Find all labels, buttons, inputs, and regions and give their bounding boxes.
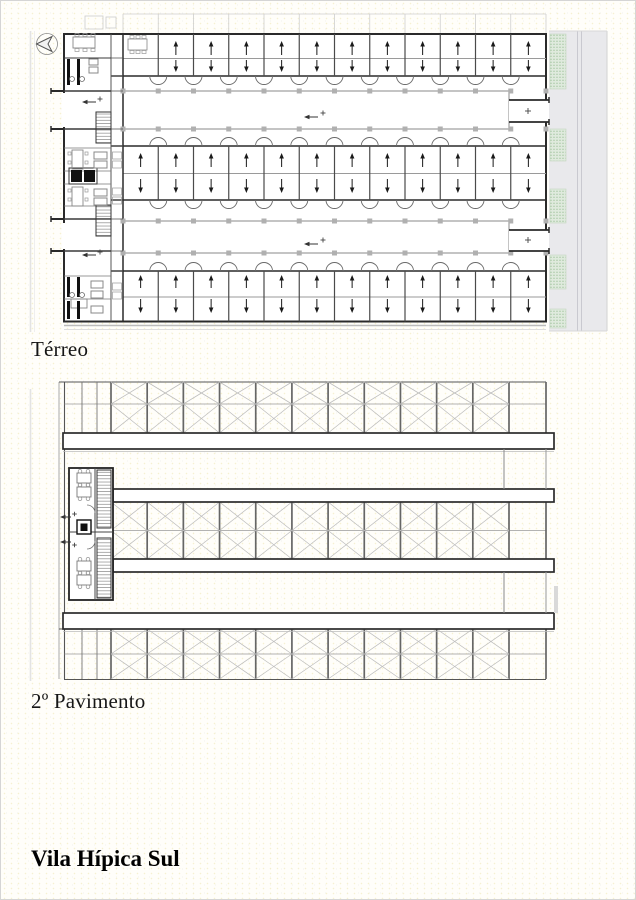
beam-bars xyxy=(63,433,554,632)
pavimento2-label: 2º Pavimento xyxy=(31,689,146,714)
terreo-floor-plan xyxy=(1,1,636,346)
corridor-1 xyxy=(123,91,509,129)
service-core xyxy=(60,468,113,600)
bracing-grid xyxy=(59,382,546,680)
terreo-label: Térreo xyxy=(31,337,88,362)
north-compass-icon xyxy=(37,34,58,55)
sheet-title: Vila Hípica Sul xyxy=(31,846,180,872)
second-floor-plan xyxy=(1,379,636,687)
corridor-2 xyxy=(123,221,509,253)
document-page: Térreo 2º Pavimento Vila Hípica Sul xyxy=(0,0,636,900)
